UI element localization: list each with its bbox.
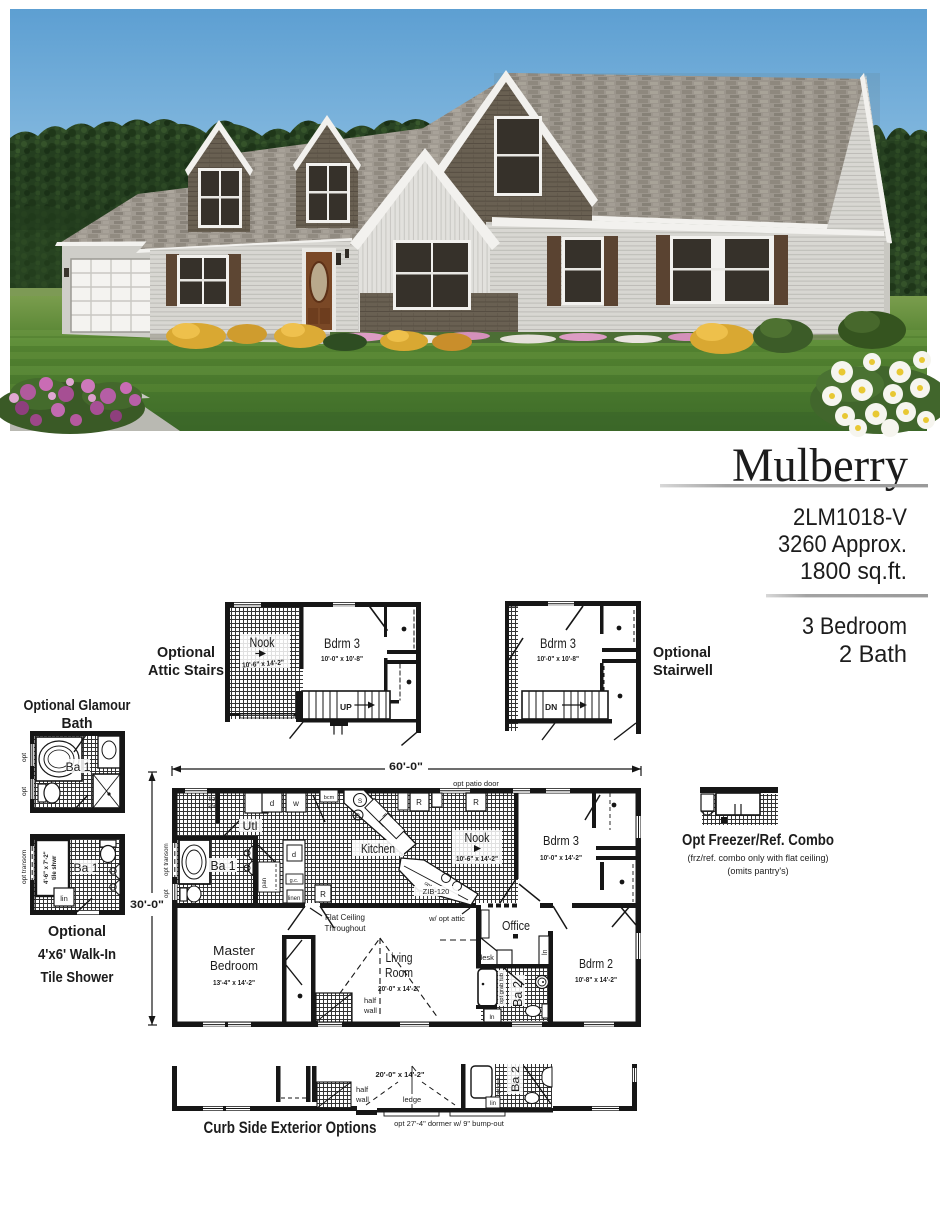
svg-text:opt patio door: opt patio door	[453, 779, 499, 788]
svg-text:10'-6" x 14'-2": 10'-6" x 14'-2"	[456, 854, 498, 863]
svg-text:opt transom: opt transom	[21, 850, 28, 884]
svg-text:Optional Glamour: Optional Glamour	[24, 697, 131, 714]
svg-text:10'-8" x 14'-2": 10'-8" x 14'-2"	[575, 975, 617, 984]
svg-text:desk: desk	[478, 953, 494, 962]
svg-text:Opt Freezer/Ref. Combo: Opt Freezer/Ref. Combo	[682, 832, 834, 849]
svg-text:Optional: Optional	[48, 923, 106, 940]
svg-text:B: B	[356, 814, 360, 820]
svg-text:opt gen: opt gen	[496, 1078, 502, 1096]
svg-text:Bath: Bath	[62, 715, 93, 732]
svg-text:UP: UP	[340, 702, 352, 712]
svg-text:Master: Master	[213, 943, 256, 958]
svg-text:spc: spc	[207, 803, 217, 810]
svg-text:lin: lin	[60, 894, 68, 903]
svg-text:lin: lin	[490, 1101, 496, 1107]
svg-text:Kitchen: Kitchen	[361, 841, 395, 856]
svg-text:Ba 2: Ba 2	[510, 981, 525, 1007]
svg-text:DN: DN	[545, 702, 557, 712]
svg-text:Nook: Nook	[250, 635, 275, 650]
svg-text:half: half	[356, 1085, 369, 1094]
svg-text:1800 sq.ft.: 1800 sq.ft.	[800, 558, 907, 585]
svg-text:10'-0" x 10'-8": 10'-0" x 10'-8"	[537, 654, 579, 663]
svg-text:20'-0" x 14'-2": 20'-0" x 14'-2"	[378, 984, 420, 993]
svg-text:R: R	[416, 798, 422, 807]
svg-text:(frz/ref. combo only with flat: (frz/ref. combo only with flat ceiling)	[687, 853, 828, 863]
svg-text:ln: ln	[542, 949, 549, 955]
svg-text:10'-0" x 10'-8": 10'-0" x 10'-8"	[321, 654, 363, 663]
svg-text:Attic Stairs: Attic Stairs	[148, 662, 224, 679]
svg-text:ln: ln	[489, 1014, 494, 1021]
svg-text:R: R	[473, 798, 479, 807]
svg-text:Ba 1: Ba 1	[211, 859, 236, 873]
svg-text:Throughout: Throughout	[325, 924, 367, 933]
svg-text:ZIB-120: ZIB-120	[423, 887, 450, 896]
svg-text:R: R	[320, 890, 326, 899]
svg-text:Bdrm 2: Bdrm 2	[579, 956, 613, 971]
svg-text:3260 Approx.: 3260 Approx.	[778, 531, 907, 558]
svg-text:wall: wall	[363, 1006, 377, 1015]
svg-text:opt grab tub: opt grab tub	[499, 973, 505, 1004]
svg-text:linen: linen	[288, 896, 301, 902]
svg-text:2 Bath: 2 Bath	[839, 641, 907, 668]
svg-text:w/ opt attic: w/ opt attic	[428, 914, 465, 923]
svg-text:10'-0" x 14'-2": 10'-0" x 14'-2"	[540, 853, 582, 862]
svg-text:Nook: Nook	[465, 830, 490, 845]
svg-text:Ba 2: Ba 2	[510, 1066, 522, 1092]
svg-text:13'-4" x 14'-2": 13'-4" x 14'-2"	[213, 978, 255, 987]
svg-text:Room: Room	[385, 965, 413, 980]
svg-text:Ba 1: Ba 1	[74, 861, 99, 875]
svg-text:opt: opt	[163, 889, 170, 898]
svg-text:Flat Ceiling: Flat Ceiling	[325, 913, 365, 922]
svg-text:4'-6" x 7'-2": 4'-6" x 7'-2"	[44, 851, 50, 884]
svg-text:tile shwr: tile shwr	[52, 855, 58, 880]
svg-text:60'-0": 60'-0"	[389, 761, 423, 773]
svg-text:opt: opt	[21, 787, 28, 796]
svg-text:wall: wall	[355, 1095, 369, 1104]
svg-text:ledge: ledge	[403, 1095, 421, 1104]
svg-text:Curb Side Exterior Options: Curb Side Exterior Options	[204, 1119, 377, 1137]
svg-text:Tile Shower: Tile Shower	[41, 969, 114, 986]
svg-text:bcm: bcm	[324, 795, 335, 801]
svg-text:opt transom: opt transom	[163, 843, 170, 876]
svg-text:frz: frz	[209, 796, 216, 803]
svg-text:Bdrm 3: Bdrm 3	[324, 636, 360, 651]
svg-text:pan: pan	[262, 878, 268, 888]
svg-text:Optional: Optional	[653, 644, 711, 661]
svg-text:w: w	[292, 799, 299, 808]
svg-text:(omits pantry's): (omits pantry's)	[727, 866, 788, 876]
svg-text:Living: Living	[386, 950, 413, 965]
svg-text:opt: opt	[21, 753, 28, 762]
svg-text:S: S	[358, 798, 363, 805]
svg-text:Stairwell: Stairwell	[653, 662, 713, 679]
svg-text:Bdrm 3: Bdrm 3	[540, 636, 576, 651]
svg-text:Office: Office	[502, 918, 530, 933]
svg-text:30'-0": 30'-0"	[130, 899, 164, 911]
svg-text:4'x6' Walk-In: 4'x6' Walk-In	[38, 946, 116, 963]
svg-text:d: d	[270, 799, 274, 808]
svg-text:Ba 1: Ba 1	[66, 760, 91, 774]
svg-text:Bedroom: Bedroom	[210, 958, 258, 973]
svg-text:g.c.: g.c.	[290, 878, 299, 884]
svg-text:Optional: Optional	[157, 644, 215, 661]
svg-text:20'-0" x 14'-2": 20'-0" x 14'-2"	[375, 1070, 424, 1079]
svg-text:half: half	[364, 996, 377, 1005]
svg-text:Utl: Utl	[243, 819, 258, 833]
svg-text:Bdrm 3: Bdrm 3	[543, 833, 579, 848]
svg-text:2LM1018-V: 2LM1018-V	[793, 504, 907, 531]
svg-text:3 Bedroom: 3 Bedroom	[802, 613, 907, 640]
svg-text:opt 27'-4" dormer w/ 9" bump-o: opt 27'-4" dormer w/ 9" bump-out	[394, 1119, 505, 1128]
svg-text:d: d	[292, 850, 296, 859]
